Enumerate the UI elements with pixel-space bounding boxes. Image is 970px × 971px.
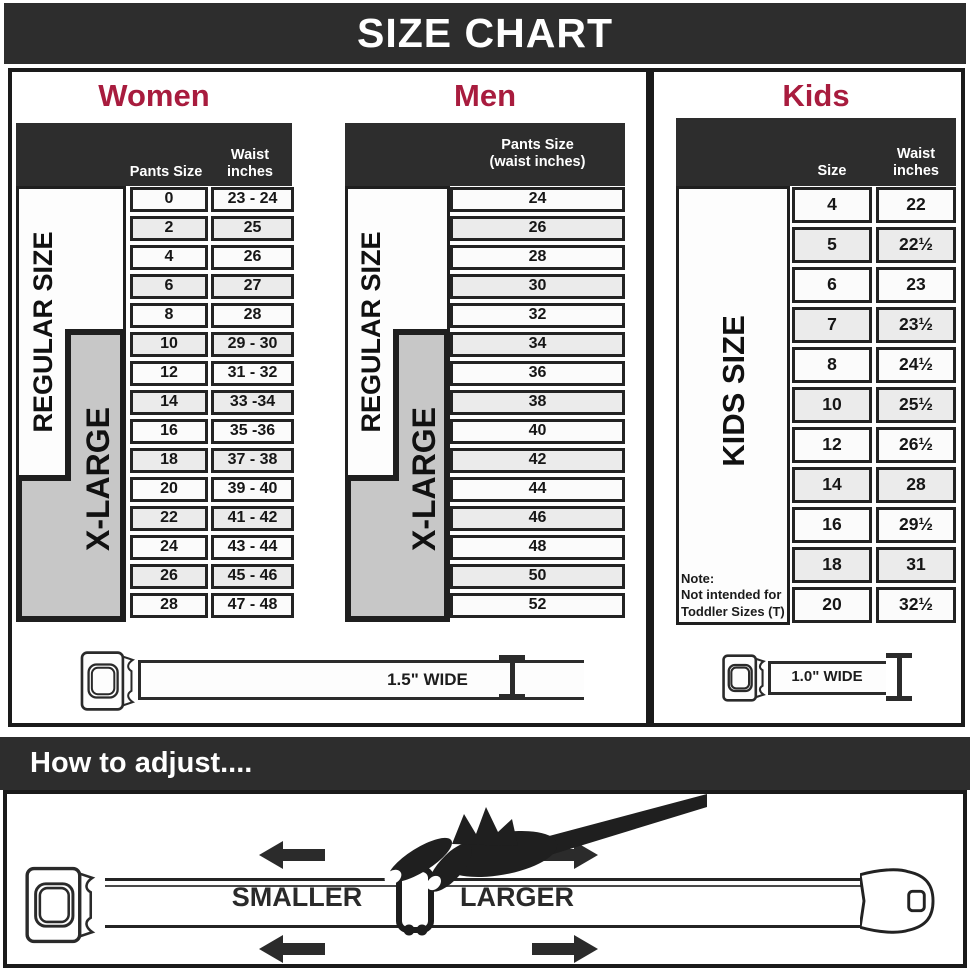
women-table-row-size-cell: 12 (130, 361, 208, 386)
women-table-row: 1029 - 30 (130, 332, 294, 357)
men-table-row-value-cell: 40 (450, 419, 625, 444)
men-table-row-value-cell: 28 (450, 245, 625, 270)
women-table-body: 023 - 242254266278281029 - 301231 - 3214… (130, 187, 294, 622)
women-table-row-waist-cell: 45 - 46 (211, 564, 294, 589)
men-table-row: 48 (450, 535, 625, 560)
men-table-row-value-cell: 30 (450, 274, 625, 299)
kids-table-row: 824½ (792, 347, 956, 383)
arrow-left-icon (259, 935, 325, 963)
men-table-row-value-cell: 34 (450, 332, 625, 357)
men-table-row: 28 (450, 245, 625, 270)
women-table-row-size-cell: 2 (130, 216, 208, 241)
women-table-row-size-cell: 14 (130, 390, 208, 415)
kids-table-row-size-cell: 4 (792, 187, 872, 223)
men-table-row: 46 (450, 506, 625, 531)
kids-table-row: 1226½ (792, 427, 956, 463)
kids-table-row-waist-cell: 24½ (876, 347, 956, 383)
women-table-row-waist-cell: 29 - 30 (211, 332, 294, 357)
men-heading: Men (345, 78, 625, 114)
kids-table-row-size-cell: 12 (792, 427, 872, 463)
women-table-row-size-cell: 18 (130, 448, 208, 473)
page-title: SIZE CHART (357, 10, 613, 56)
men-table-row: 32 (450, 303, 625, 328)
women-table-row: 2847 - 48 (130, 593, 294, 618)
women-table-row-size-cell: 0 (130, 187, 208, 212)
men-table-row-value-cell: 46 (450, 506, 625, 531)
kids-table-row-size-cell: 6 (792, 267, 872, 303)
kids-table-row-waist-cell: 31 (876, 547, 956, 583)
kids-table-row: 623 (792, 267, 956, 303)
women-table-row-waist-cell: 41 - 42 (211, 506, 294, 531)
men-table-row-value-cell: 26 (450, 216, 625, 241)
arrow-left-icon (259, 841, 325, 869)
kids-belt-width-label: 1.0" WIDE (770, 668, 884, 685)
men-table-row: 44 (450, 477, 625, 502)
seatbelt-buckle-icon (21, 866, 113, 944)
kids-note: Note: Not intended for Toddler Sizes (T) (681, 571, 787, 621)
women-table-row-waist-cell: 37 - 38 (211, 448, 294, 473)
women-table-row-size-cell: 22 (130, 506, 208, 531)
kids-table-row: 1428 (792, 467, 956, 503)
kids-table-row: 422 (792, 187, 956, 223)
seatbelt-buckle-icon (80, 648, 146, 714)
kids-table-row-waist-cell: 32½ (876, 587, 956, 623)
men-xlarge-label: X-LARGE (406, 339, 440, 619)
kids-table-row-waist-cell: 23½ (876, 307, 956, 343)
kids-table-row: 723½ (792, 307, 956, 343)
men-table-row-value-cell: 48 (450, 535, 625, 560)
men-table-row-value-cell: 50 (450, 564, 625, 589)
kids-table-row-waist-cell: 28 (876, 467, 956, 503)
women-table-row: 1837 - 38 (130, 448, 294, 473)
size-chart-page: SIZE CHART Women Men Pants Size Waist in… (0, 0, 970, 971)
kids-table-row-waist-cell: 25½ (876, 387, 956, 423)
men-table-row: 50 (450, 564, 625, 589)
kids-table-row-size-cell: 14 (792, 467, 872, 503)
kids-table-row: 1831 (792, 547, 956, 583)
kids-table-row: 2032½ (792, 587, 956, 623)
women-size-range-column: REGULAR SIZE X-LARGE (16, 186, 126, 622)
kids-table-row-size-cell: 7 (792, 307, 872, 343)
women-table-row-size-cell: 16 (130, 419, 208, 444)
women-table-row-size-cell: 26 (130, 564, 208, 589)
men-table-row: 52 (450, 593, 625, 618)
women-table-row: 426 (130, 245, 294, 270)
women-table-row-waist-cell: 35 -36 (211, 419, 294, 444)
kids-table-row: 1629½ (792, 507, 956, 543)
women-regular-size-label: REGULAR SIZE (28, 192, 56, 472)
men-table-body: 242628303234363840424446485052 (450, 187, 625, 622)
seatbelt-buckle-icon (722, 652, 774, 704)
women-table-row-waist-cell: 25 (211, 216, 294, 241)
kids-table-row-size-cell: 18 (792, 547, 872, 583)
women-table-row-waist-cell: 23 - 24 (211, 187, 294, 212)
women-table-row: 828 (130, 303, 294, 328)
hand-illustration (362, 794, 707, 892)
women-table-row-waist-cell: 47 - 48 (211, 593, 294, 618)
men-table-row: 40 (450, 419, 625, 444)
adult-belt-width-label: 1.5" WIDE (375, 670, 480, 690)
men-table-row: 38 (450, 390, 625, 415)
men-table-row: 26 (450, 216, 625, 241)
women-table-row-waist-cell: 26 (211, 245, 294, 270)
arrow-right-icon (532, 935, 598, 963)
men-table-header: Pants Size (waist inches) (345, 123, 625, 186)
women-table-row-waist-cell: 43 - 44 (211, 535, 294, 560)
how-to-adjust-title: How to adjust.... (30, 747, 252, 779)
women-xlarge-label: X-LARGE (80, 339, 114, 619)
women-table-row-size-cell: 4 (130, 245, 208, 270)
men-table-row: 36 (450, 361, 625, 386)
women-table-row: 2039 - 40 (130, 477, 294, 502)
kids-table-row-waist-cell: 23 (876, 267, 956, 303)
women-table-row-size-cell: 10 (130, 332, 208, 357)
kids-size-header: Size (792, 163, 872, 180)
kids-table-row-size-cell: 8 (792, 347, 872, 383)
men-table-row-value-cell: 52 (450, 593, 625, 618)
adult-size-panel: Women Men Pants Size Waist inches REGULA… (8, 68, 650, 727)
kids-heading: Kids (676, 78, 956, 114)
men-table-row: 30 (450, 274, 625, 299)
kids-table-row-size-cell: 10 (792, 387, 872, 423)
women-waist-header: Waist inches (208, 147, 292, 181)
women-pants-size-header: Pants Size (126, 164, 206, 181)
men-regular-size-label: REGULAR SIZE (356, 192, 384, 472)
width-measure-icon (886, 653, 912, 701)
women-table-row-size-cell: 20 (130, 477, 208, 502)
women-table-row-size-cell: 28 (130, 593, 208, 618)
kids-table-row-size-cell: 20 (792, 587, 872, 623)
men-pants-size-header: Pants Size (waist inches) (450, 137, 625, 171)
women-table-row: 2443 - 44 (130, 535, 294, 560)
women-table-row: 225 (130, 216, 294, 241)
kids-size-column: KIDS SIZE Note: Not intended for Toddler… (676, 186, 790, 625)
kids-table-row-waist-cell: 26½ (876, 427, 956, 463)
men-table-row-value-cell: 44 (450, 477, 625, 502)
adjust-illustration-panel: SMALLER LARGER (3, 790, 967, 968)
kids-table-body: 422522½623723½824½1025½1226½14281629½183… (792, 187, 956, 627)
women-table-row: 1635 -36 (130, 419, 294, 444)
women-table-row: 1231 - 32 (130, 361, 294, 386)
kids-table-header: Size Waist inches (676, 118, 956, 186)
women-table-row: 2241 - 42 (130, 506, 294, 531)
kids-table-row: 522½ (792, 227, 956, 263)
men-table-row-value-cell: 24 (450, 187, 625, 212)
women-table-row-size-cell: 8 (130, 303, 208, 328)
kids-table-row-waist-cell: 29½ (876, 507, 956, 543)
men-size-range-column: REGULAR SIZE X-LARGE (345, 186, 450, 622)
kids-waist-header: Waist inches (876, 146, 956, 180)
kids-table-row: 1025½ (792, 387, 956, 423)
kids-table-row-size-cell: 16 (792, 507, 872, 543)
women-table-row: 1433 -34 (130, 390, 294, 415)
men-table-row-value-cell: 36 (450, 361, 625, 386)
men-table-row-value-cell: 32 (450, 303, 625, 328)
kids-table-row-waist-cell: 22½ (876, 227, 956, 263)
men-table-row: 34 (450, 332, 625, 357)
width-measure-icon (499, 655, 525, 699)
women-heading: Women (16, 78, 292, 114)
kids-table-row-size-cell: 5 (792, 227, 872, 263)
women-table-row: 627 (130, 274, 294, 299)
women-table-header: Pants Size Waist inches (16, 123, 292, 186)
men-table-row-value-cell: 38 (450, 390, 625, 415)
kids-size-label: KIDS SIZE (716, 241, 750, 541)
women-table-row-waist-cell: 33 -34 (211, 390, 294, 415)
women-table-row-waist-cell: 39 - 40 (211, 477, 294, 502)
women-table-row-waist-cell: 31 - 32 (211, 361, 294, 386)
women-table-row-waist-cell: 27 (211, 274, 294, 299)
size-chart-banner: SIZE CHART (4, 3, 966, 64)
women-table-row-size-cell: 6 (130, 274, 208, 299)
men-table-row: 42 (450, 448, 625, 473)
women-table-row: 023 - 24 (130, 187, 294, 212)
men-table-row: 24 (450, 187, 625, 212)
women-table-row: 2645 - 46 (130, 564, 294, 589)
how-to-adjust-banner: How to adjust.... (0, 737, 970, 790)
women-table-row-size-cell: 24 (130, 535, 208, 560)
women-table-row-waist-cell: 28 (211, 303, 294, 328)
kids-table-row-waist-cell: 22 (876, 187, 956, 223)
kids-size-panel: Kids Size Waist inches KIDS SIZE Note: N… (650, 68, 965, 727)
belt-tip-icon (860, 866, 938, 936)
men-table-row-value-cell: 42 (450, 448, 625, 473)
